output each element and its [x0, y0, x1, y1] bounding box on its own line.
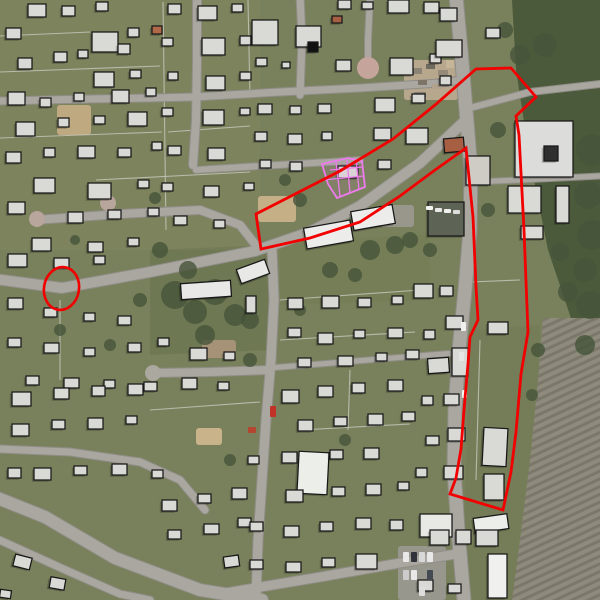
building-footprint: [440, 76, 451, 85]
building-footprint: [128, 112, 147, 126]
building-footprint: [332, 487, 345, 496]
building-footprint: [288, 298, 303, 309]
tree: [183, 300, 207, 324]
aerial-map: [0, 0, 600, 600]
building-footprint: [168, 72, 178, 80]
building-footprint: [181, 280, 232, 299]
building-footprint: [16, 122, 35, 136]
building-footprint: [214, 220, 225, 228]
vehicle: [461, 322, 466, 331]
building-footprint: [318, 104, 331, 113]
building-footprint: [130, 70, 141, 78]
building-footprint: [424, 330, 435, 339]
tree: [481, 203, 495, 217]
building-footprint: [8, 298, 23, 309]
building-footprint: [8, 254, 27, 267]
building-footprint: [112, 90, 129, 103]
building-footprint: [288, 134, 302, 144]
building-footprint: [104, 380, 115, 388]
building-footprint: [330, 450, 343, 459]
tree: [279, 174, 291, 186]
vehicle: [459, 352, 464, 361]
building-footprint: [92, 32, 118, 52]
building-footprint: [318, 386, 333, 397]
building-footprint: [174, 216, 187, 225]
building-footprint: [78, 50, 88, 58]
building-footprint: [74, 93, 84, 101]
building-footprint: [8, 468, 21, 478]
building-footprint: [84, 348, 95, 356]
building-footprint: [198, 494, 211, 503]
building-footprint: [428, 357, 450, 373]
building-footprint: [416, 468, 427, 477]
building-footprint: [406, 350, 419, 359]
building-footprint: [356, 518, 371, 529]
building-footprint: [8, 202, 25, 214]
building-footprint: [482, 427, 508, 466]
building-footprint: [444, 394, 459, 405]
building-footprint: [476, 530, 498, 546]
building-footprint: [94, 72, 114, 87]
vehicle: [403, 570, 409, 580]
building-footprint: [158, 338, 169, 346]
tree: [104, 339, 116, 351]
building-footprint: [128, 384, 143, 395]
building-footprint: [182, 378, 197, 389]
building-footprint: [168, 530, 181, 539]
building-footprint: [388, 0, 409, 13]
building-footprint: [128, 343, 141, 352]
building-footprint: [352, 383, 365, 393]
building-footprint: [390, 520, 403, 530]
building-footprint: [508, 186, 541, 213]
building-footprint: [318, 333, 333, 344]
building-footprint: [426, 436, 439, 445]
vehicle: [403, 552, 409, 562]
building-footprint: [297, 451, 329, 495]
building-footprint: [456, 530, 471, 544]
tree: [386, 236, 404, 254]
building-footprint: [288, 328, 301, 337]
tree: [224, 454, 236, 466]
building-footprint: [8, 92, 25, 105]
building-footprint: [250, 522, 263, 531]
building-footprint: [52, 420, 65, 429]
tree: [149, 192, 161, 204]
tl-vertical-road: [193, 0, 197, 165]
building-footprint: [298, 420, 313, 431]
building-footprint: [248, 456, 259, 464]
building-footprint: [162, 500, 177, 511]
building-footprint: [126, 416, 137, 424]
cul-de-sac-bulb: [145, 365, 161, 381]
building-footprint: [282, 390, 299, 403]
building-footprint: [88, 183, 111, 199]
building-footprint: [446, 316, 463, 329]
building-footprint: [556, 186, 569, 223]
building-footprint: [332, 16, 342, 23]
building-footprint: [144, 382, 157, 391]
building-footprint: [54, 52, 67, 62]
tree: [510, 45, 530, 65]
building-footprint: [112, 464, 127, 475]
building-footprint: [290, 106, 301, 114]
building-footprint: [68, 212, 83, 223]
building-footprint: [364, 448, 379, 459]
building-footprint: [152, 470, 163, 478]
vehicle: [427, 552, 433, 562]
building-footprint: [138, 180, 149, 188]
building-footprint: [286, 562, 301, 572]
building-footprint: [246, 296, 256, 313]
building-footprint: [74, 466, 87, 475]
building-footprint: [388, 380, 403, 391]
building-footprint: [298, 358, 311, 367]
building-footprint: [168, 146, 181, 155]
soil-patch: [196, 428, 222, 445]
building-footprint: [58, 118, 69, 127]
building-footprint: [258, 104, 272, 114]
building-footprint: [308, 42, 318, 52]
building-footprint: [204, 186, 219, 197]
building-footprint: [240, 36, 251, 45]
building-footprint: [94, 116, 105, 124]
building-footprint: [118, 44, 130, 54]
tree: [179, 261, 197, 279]
building-footprint: [223, 555, 239, 568]
building-footprint: [430, 530, 449, 545]
building-footprint: [54, 388, 69, 399]
building-footprint: [108, 210, 121, 219]
building-footprint: [406, 128, 428, 144]
building-footprint: [260, 160, 271, 168]
building-footprint: [424, 2, 439, 13]
building-footprint: [436, 40, 462, 57]
building-footprint: [8, 338, 21, 347]
building-footprint: [162, 108, 173, 116]
building-footprint: [284, 526, 299, 537]
building-footprint: [152, 142, 162, 150]
building-footprint: [84, 313, 95, 321]
building-footprint: [388, 328, 403, 338]
building-footprint: [208, 148, 225, 160]
building-footprint: [34, 468, 51, 480]
building-footprint: [6, 28, 21, 39]
vehicle: [426, 206, 433, 210]
yard-object: [418, 80, 427, 85]
building-footprint: [88, 242, 103, 252]
building-footprint: [203, 110, 224, 125]
building-footprint: [64, 378, 79, 388]
building-footprint: [206, 76, 225, 90]
tree: [322, 262, 338, 278]
building-footprint: [250, 560, 263, 569]
building-footprint: [366, 484, 381, 495]
building-footprint: [128, 28, 139, 37]
building-footprint: [392, 296, 403, 304]
building-footprint: [34, 178, 55, 193]
tree: [490, 122, 506, 138]
building-footprint: [162, 38, 173, 46]
vehicle: [270, 406, 276, 417]
tree: [423, 243, 437, 257]
tree: [152, 242, 168, 258]
building-footprint: [146, 88, 156, 96]
building-footprint: [168, 4, 181, 14]
tree: [133, 293, 147, 307]
vehicle: [427, 570, 433, 580]
building-footprint: [244, 183, 254, 190]
building-footprint: [32, 238, 51, 251]
vehicle: [248, 427, 256, 433]
building-footprint: [118, 148, 131, 157]
building-footprint: [26, 376, 39, 385]
tree: [348, 268, 362, 282]
yard-object: [446, 60, 454, 68]
tree: [531, 343, 545, 357]
building-footprint: [398, 482, 409, 490]
building-footprint: [218, 382, 229, 390]
building-footprint: [40, 98, 51, 107]
building-footprint: [240, 72, 251, 80]
building-footprint: [148, 208, 159, 216]
vehicle: [435, 208, 442, 212]
tree: [402, 232, 418, 248]
building-footprint: [320, 522, 333, 531]
tree: [551, 243, 569, 261]
building-footprint: [358, 298, 371, 307]
building-footprint: [414, 284, 433, 298]
building-footprint: [390, 58, 413, 75]
tree: [339, 434, 351, 446]
tree: [243, 353, 257, 367]
building-footprint: [252, 20, 278, 45]
building-footprint: [28, 4, 46, 17]
map-viewport[interactable]: [0, 0, 600, 600]
tree: [558, 282, 578, 302]
building-footprint: [356, 554, 377, 569]
building-footprint: [322, 558, 335, 567]
building-footprint: [322, 132, 332, 140]
building-footprint: [255, 132, 267, 141]
building-footprint: [544, 146, 558, 161]
vehicle: [411, 552, 417, 562]
building-footprint: [362, 2, 373, 9]
building-footprint: [6, 152, 21, 163]
building-footprint: [484, 474, 504, 500]
building-footprint: [338, 356, 353, 366]
vehicle: [419, 552, 425, 562]
building-footprint: [232, 4, 243, 12]
building-footprint: [202, 38, 225, 55]
building-footprint: [49, 577, 66, 590]
building-footprint: [486, 28, 500, 38]
building-footprint: [12, 424, 29, 436]
building-footprint: [378, 160, 391, 169]
building-footprint: [376, 353, 387, 361]
building-footprint: [282, 452, 297, 463]
tl-horizontal-road: [0, 97, 194, 101]
building-footprint: [448, 584, 461, 593]
mid-horizontal-road: [153, 370, 268, 373]
building-footprint: [18, 58, 32, 69]
building-footprint: [374, 128, 391, 140]
building-footprint: [190, 348, 207, 360]
building-footprint: [375, 98, 395, 112]
building-footprint: [78, 146, 95, 158]
cul-de-sac-bulb: [29, 211, 45, 227]
cul-de-sac-bulb: [357, 57, 379, 79]
vehicle: [419, 586, 425, 596]
tree: [360, 240, 380, 260]
tree: [54, 324, 66, 336]
building-footprint: [162, 183, 173, 191]
building-footprint: [286, 490, 303, 502]
building-footprint: [440, 8, 457, 21]
building-footprint: [198, 6, 217, 20]
vehicle: [453, 210, 460, 214]
building-footprint: [118, 316, 131, 325]
building-footprint: [94, 256, 105, 264]
building-footprint: [232, 488, 247, 499]
building-footprint: [44, 148, 55, 157]
tree: [526, 389, 538, 401]
building-footprint: [224, 352, 235, 360]
building-footprint: [444, 466, 463, 479]
building-footprint: [488, 322, 508, 334]
building-footprint: [88, 418, 103, 429]
building-footprint: [204, 524, 219, 534]
building-footprint: [240, 108, 250, 115]
building-footprint: [282, 62, 290, 68]
tree: [70, 235, 80, 245]
building-footprint: [12, 392, 31, 406]
building-footprint: [128, 238, 139, 246]
yard-object: [438, 70, 448, 76]
building-footprint: [440, 286, 453, 296]
building-footprint: [368, 414, 383, 425]
building-footprint: [290, 162, 302, 171]
tree: [573, 258, 597, 282]
building-footprint: [488, 554, 507, 598]
building-footprint: [402, 412, 415, 421]
tree: [575, 335, 595, 355]
building-footprint: [92, 386, 105, 396]
building-footprint: [62, 6, 75, 16]
building-footprint: [152, 26, 162, 34]
building-footprint: [354, 330, 365, 338]
building-footprint: [334, 417, 347, 426]
building-footprint: [322, 296, 339, 308]
building-footprint: [428, 202, 464, 236]
building-footprint: [338, 0, 351, 9]
building-footprint: [256, 58, 267, 66]
tree: [195, 325, 215, 345]
tree: [533, 33, 557, 57]
building-footprint: [96, 2, 108, 11]
vehicle: [444, 209, 451, 213]
building-footprint: [422, 396, 433, 405]
vehicle: [411, 570, 417, 580]
building-footprint: [44, 343, 59, 353]
building-footprint: [336, 60, 351, 71]
building-footprint: [0, 589, 12, 598]
building-footprint: [412, 94, 425, 103]
